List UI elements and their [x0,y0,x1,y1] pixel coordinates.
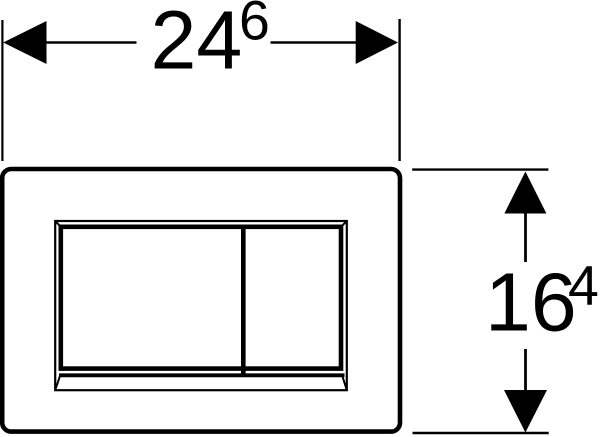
svg-text:4: 4 [568,255,599,317]
svg-text:6: 6 [239,0,270,52]
svg-text:24: 24 [151,0,243,87]
svg-text:16: 16 [485,257,577,349]
